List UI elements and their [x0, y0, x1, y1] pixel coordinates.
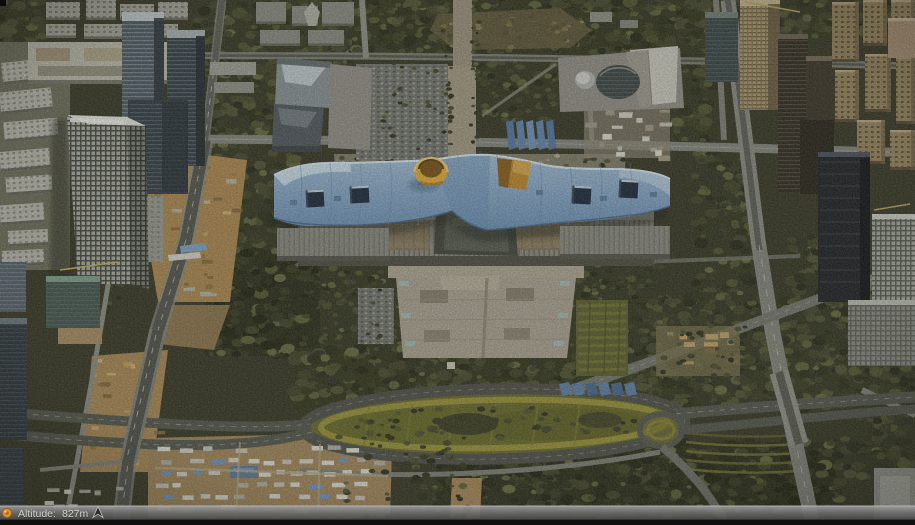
svg-text:827m: 827m: [62, 508, 89, 520]
svg-text:Altitude:: Altitude:: [18, 508, 56, 520]
